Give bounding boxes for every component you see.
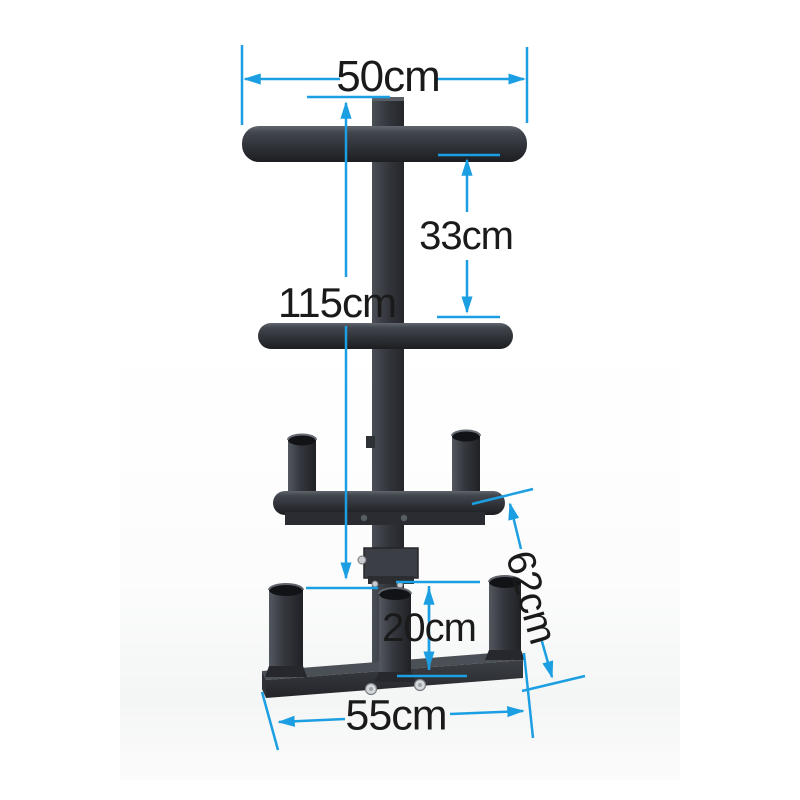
product-dimension-image: 50cm 115cm 33cm 62cm 20cm 55cm xyxy=(0,0,800,800)
dim-label-top-bar-width: 50cm xyxy=(336,55,440,99)
dim-label-tier-gap: 33cm xyxy=(419,216,513,256)
dimension-annotations xyxy=(0,0,800,800)
dim-label-base-post-height: 20cm xyxy=(382,608,476,648)
dim-115cm xyxy=(306,97,390,588)
dim-label-rack-height: 115cm xyxy=(278,282,396,324)
dim-label-base-width: 55cm xyxy=(345,695,446,738)
